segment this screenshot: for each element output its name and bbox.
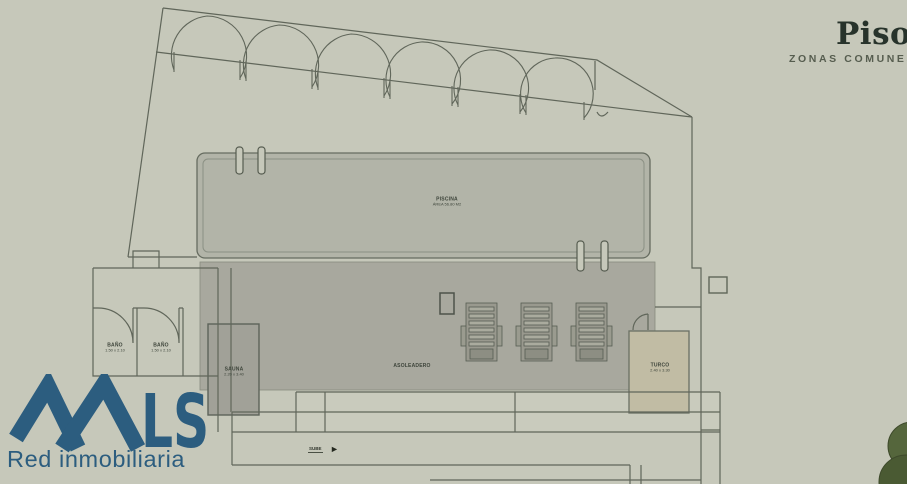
deck-label: ASOLEADERO — [393, 363, 430, 369]
page-title: Piso 5 — [836, 16, 907, 52]
bath-left-label: BAÑO 1.50 x 2.10 — [105, 342, 125, 353]
turco-label: TURCO 2.40 x 3.30 — [650, 362, 670, 373]
floorplan-page: Piso 5 ZONAS COMUNES PISCINA ÁREA 56.80 … — [0, 0, 907, 484]
mls-logo-m-mark — [16, 384, 138, 448]
sun-lounger-icon — [461, 303, 612, 361]
page-subtitle: ZONAS COMUNES — [789, 53, 907, 65]
plant-icon — [862, 418, 907, 484]
stairs-arrow-icon: ► — [330, 445, 339, 454]
pool-label: PISCINA ÁREA 56.80 M2 — [433, 196, 461, 207]
arcade-door-arcs — [171, 16, 593, 120]
door-arc — [98, 308, 133, 343]
door-arc — [144, 308, 179, 343]
stairs-label: SUBE — [308, 446, 323, 453]
logo-tagline: Red inmobiliaria — [7, 446, 185, 473]
bath-right-label: BAÑO 1.50 x 2.10 — [151, 342, 171, 353]
